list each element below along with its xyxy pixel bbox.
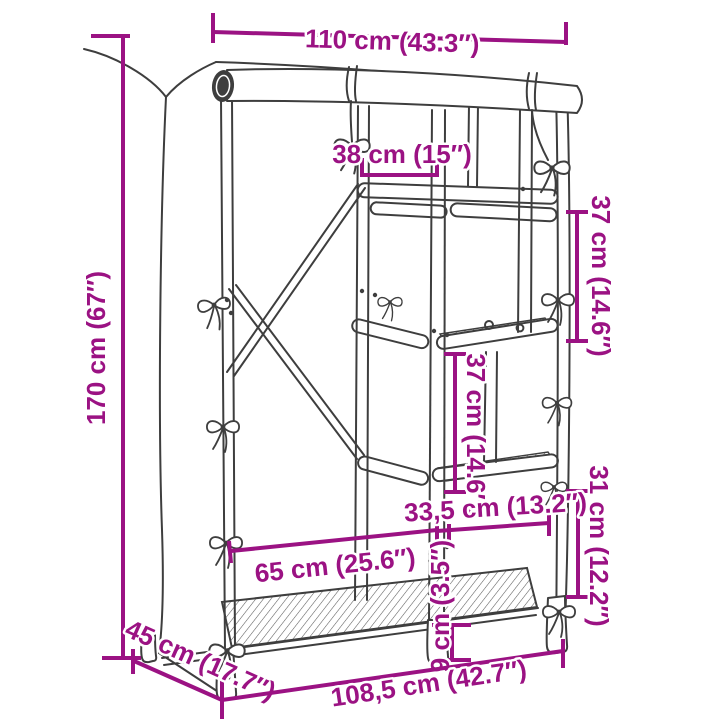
tie-bow xyxy=(378,298,402,321)
tie-bow xyxy=(197,297,233,332)
dimension-height-170: 170 cm (67″) xyxy=(81,36,141,658)
shelf-level-3 xyxy=(357,452,559,486)
shelf-level-2 xyxy=(351,318,559,350)
tie-bow xyxy=(210,537,242,568)
wardrobe-diagram-canvas: 170 cm (67″) 110 cm (43.3″) 38 cm (15″) … xyxy=(0,0,720,720)
dimension-label-gap-middle: 37 cm (14.6″) xyxy=(461,353,491,514)
dimension-gap-middle-37: 37 cm (14.6″) xyxy=(444,353,491,514)
dimension-label-foot-clearance: 9 cm (3.5″) xyxy=(425,540,455,672)
dimension-inner-width-38: 38 cm (15″) xyxy=(332,139,472,177)
dimension-width-top-110: 110 cm (43.3″) xyxy=(213,13,566,59)
dimension-label-gap-lower-right: 31 cm (12.2″) xyxy=(584,465,614,626)
dimension-label-height: 170 cm (67″) xyxy=(81,271,111,425)
product-dimension-diagram: 170 cm (67″) 110 cm (43.3″) 38 cm (15″) … xyxy=(0,0,720,720)
shelf-level-1 xyxy=(358,183,558,222)
dimension-label-gap-upper-right: 37 cm (14.6″) xyxy=(586,195,616,356)
cross-brace xyxy=(227,184,365,459)
dimension-shelf-right-33-5: 33,5 cm (13.2″) xyxy=(403,486,588,541)
dimension-label-width-top: 110 cm (43.3″) xyxy=(305,23,480,58)
dimension-label-shelf-left: 65 cm (25.6″) xyxy=(253,542,417,589)
dimension-shelf-left-65: 65 cm (25.6″) xyxy=(229,518,437,588)
dimension-gap-upper-right-37: 37 cm (14.6″) xyxy=(566,195,616,356)
dimension-label-inner-width: 38 cm (15″) xyxy=(332,139,472,169)
dimension-label-shelf-right: 33,5 cm (13.2″) xyxy=(403,486,588,527)
